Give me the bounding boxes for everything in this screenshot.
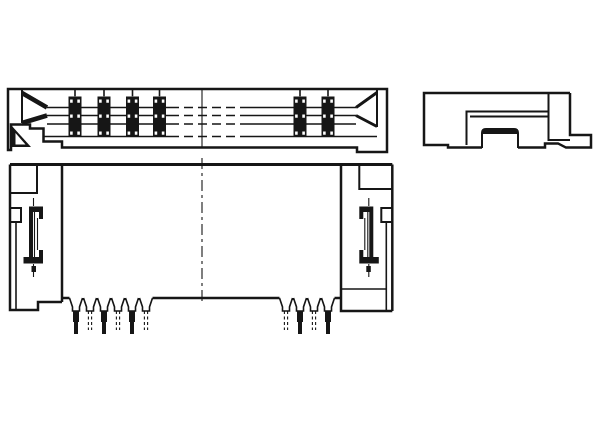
- clip-right-solid-parts: [359, 207, 379, 273]
- side-section-view: [8, 89, 387, 152]
- pin-hidden-tails: [88, 311, 315, 330]
- front-view-notch-left: [10, 165, 37, 194]
- front-view-side-box-right: [381, 208, 392, 222]
- solder-pins: [70, 298, 335, 334]
- pin-solid-tails: [73, 311, 331, 334]
- hold-down-clip-right: [359, 198, 379, 277]
- clip-right-slot-lines: [365, 212, 368, 257]
- side-view-break-dashed-lines: [170, 108, 240, 137]
- end-view: [424, 93, 591, 148]
- drawing-page: [0, 0, 600, 429]
- front-view-body-outline: [10, 165, 392, 312]
- end-view-inner-column: [549, 93, 571, 140]
- technical-drawing-canvas: [0, 0, 600, 429]
- front-view-notch-right: [359, 165, 392, 190]
- side-view-left-entry-wedge: [22, 93, 47, 123]
- side-view-right-entry-wedge: [356, 93, 377, 127]
- clip-left-slot-lines: [35, 212, 38, 257]
- front-view: [10, 158, 392, 334]
- front-view-side-box-left: [10, 208, 21, 222]
- clip-left-solid-parts: [24, 207, 44, 273]
- hold-down-clip-left: [24, 198, 44, 277]
- end-view-actuator-cap: [483, 130, 518, 135]
